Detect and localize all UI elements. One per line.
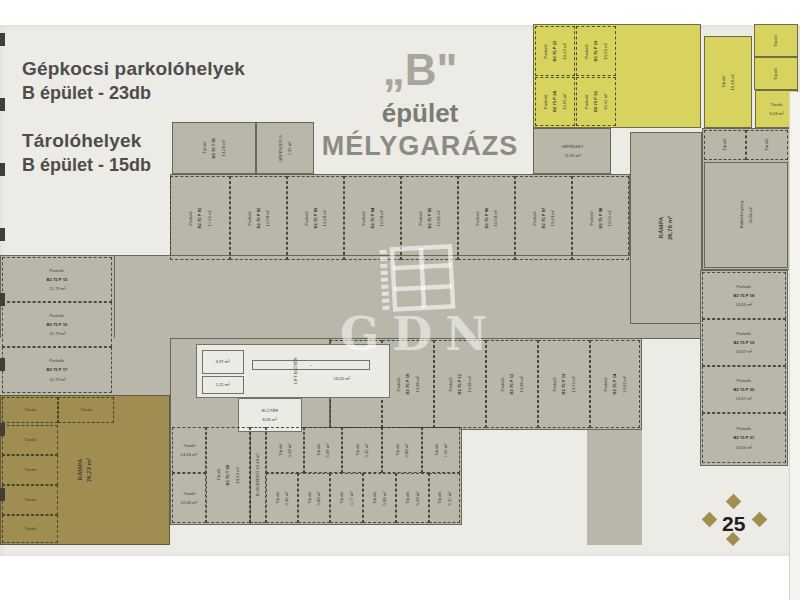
parking-stall: ParkolóB2 75 P 1611,73 m² (2, 302, 112, 347)
storage-cell: Tároló5,00 m² (363, 473, 396, 523)
room-core-cell: 3,97 m² (202, 350, 244, 374)
room-gepeszet: GÉPÉSZET11,93 m² (533, 128, 611, 174)
diamond-icon (752, 512, 768, 528)
parking-stall: ParkolóB2 75 P 0117,42 m² (170, 176, 230, 260)
parking-stall: ParkolóB2 75 P 1711,73 m² (2, 347, 112, 393)
storage-cell: Tároló5,39 m² (342, 427, 382, 473)
parking-stall: ParkolóB2 75 P 0212,50 m² (230, 176, 287, 260)
parking-stall: ParkolóB2 75 P 0812,52 m² (572, 176, 629, 260)
room-yellow-cell: Tároló (754, 24, 798, 57)
room-gepeszeti-top: GÉPÉSZETI h.7,32 m² (256, 122, 314, 174)
storage-cell: Tároló6,17 m² (429, 473, 460, 523)
storage-cell-olive: Tároló (2, 485, 58, 515)
page-number: 25 (722, 512, 745, 536)
parking-stall: ParkolóB2 75 P 2113,65 m² (702, 413, 786, 463)
photo-of-brochure-page: RÁMPA26,76 m²GÉPÉSZET11,93 m²TárolóB2 75… (0, 0, 800, 600)
storage-cell: TárolóB2 75 T 0310,13 m² (206, 427, 250, 523)
storage-cell: Tároló7,46 m² (422, 427, 460, 473)
parking-stall: ParkolóB2 75 P 1213,06 m² (486, 340, 538, 428)
storage-cell-olive: Tároló (2, 397, 58, 423)
storage-cell: Tároló5,80 m² (298, 473, 330, 523)
diamond-icon (702, 512, 718, 528)
title-melygarazs: MÉLYGARÁZS (320, 131, 520, 162)
parking-count-title: Gépkocsi parkolóhelyek (22, 58, 245, 80)
storage-count-title: Tárolóhelyek (22, 130, 245, 152)
storage-cell-olive: Tároló (2, 515, 58, 543)
parking-stall: ParkolóB2 75 P 0713,40 m² (515, 176, 572, 260)
floor-right-strip (587, 430, 642, 545)
parking-stall: ParkolóB2 75 P 0412,50 m² (344, 176, 401, 260)
room-core-cell: 1,22 m² (202, 376, 244, 394)
page-number-block: 25 (698, 498, 778, 562)
parking-stall: ParkolóB2 75 P 0513,06 m² (401, 176, 458, 260)
corridor-kozlekedo: KÖZLEKEDŐ 16,40 m² (250, 427, 266, 523)
parking-stall: ParkolóB2 75 P 0612,50 m² (458, 176, 515, 260)
parking-stall: ParkolóB2 75 P 0313,40 m² (287, 176, 344, 260)
photo-edge-tick (0, 293, 5, 306)
storage-cell: Tároló14,44 m² (172, 427, 206, 473)
parking-count-value: B épület - 23db (22, 83, 245, 104)
parking-stall: ParkolóB2 75 P 1313,91 m² (538, 340, 590, 428)
parking-stall: ParkolóB2 75 P 2315,65 m² (576, 26, 616, 76)
storage-cell: Tároló (746, 130, 788, 160)
storage-cell: Tároló5,38 m² (304, 427, 342, 473)
storage-cell: Tároló5,40 m² (396, 473, 429, 523)
storage-cell-olive: Tároló (2, 425, 58, 455)
photo-edge-tick (0, 228, 5, 241)
storage-cell: Tároló (704, 130, 746, 160)
photo-edge-tick (0, 358, 5, 371)
photo-edge-tick (0, 488, 5, 501)
storage-cell: Tároló4,80 m² (382, 427, 422, 473)
storage-cell-olive: Tároló (2, 455, 58, 485)
parking-stall: ParkolóB2 75 P 2415,65 m² (535, 77, 575, 126)
parking-stall: ParkolóB2 75 P 1813,65 m² (702, 272, 786, 319)
storage-cell-olive: Tároló (58, 397, 114, 423)
parking-stall: ParkolóB2 75 P 2516,42 m² (576, 77, 616, 126)
page-edge (789, 92, 800, 600)
parking-stall: ParkolóB2 75 P 1113,06 m² (434, 340, 486, 428)
room-rampa-upper: RÁMPA26,76 m² (630, 132, 702, 324)
storage-cell: Tároló4,77 m² (330, 473, 363, 523)
label-stair-area: 18,20 m² (312, 372, 372, 386)
parking-stall: ParkolóB2 75 P 1511,73 m² (2, 257, 112, 302)
photo-edge-tick (0, 163, 5, 176)
plan-title: „B" épület MÉLYGARÁZS (320, 48, 520, 162)
parking-stall: ParkolóB2 75 P 1913,67 m² (702, 319, 786, 366)
storage-cell: Tároló4,40 m² (266, 427, 304, 473)
room-yellow-taroló: Tároló16,18 m² (704, 36, 752, 128)
building-letter: „B" (320, 48, 520, 92)
photo-edge-tick (0, 33, 5, 46)
title-epulet: épület (320, 98, 520, 129)
label-lift-lobby: LIFT ELŐTÉR (288, 344, 304, 398)
storage-count-value: B épület - 15db (22, 155, 245, 176)
room-yellow-cell: Tároló (754, 57, 798, 90)
photo-edge-tick (0, 423, 5, 436)
room-raktar: Raktárhelyiség34,04 m² (704, 162, 788, 268)
stair-run: → (252, 360, 370, 370)
storage-cell: Tároló12,06 m² (172, 473, 206, 523)
storage-cell: Tároló4,38 m² (266, 473, 298, 523)
parking-stall: ParkolóB2 75 P 2216,42 m² (535, 26, 575, 76)
photo-edge-tick (0, 98, 5, 111)
parking-stall: ParkolóB2 75 P 2013,67 m² (702, 366, 786, 413)
legend-block: Gépkocsi parkolóhelyek B épület - 23db T… (22, 58, 245, 176)
parking-stall: ParkolóB2 75 P 1421,82 m² (590, 340, 640, 428)
